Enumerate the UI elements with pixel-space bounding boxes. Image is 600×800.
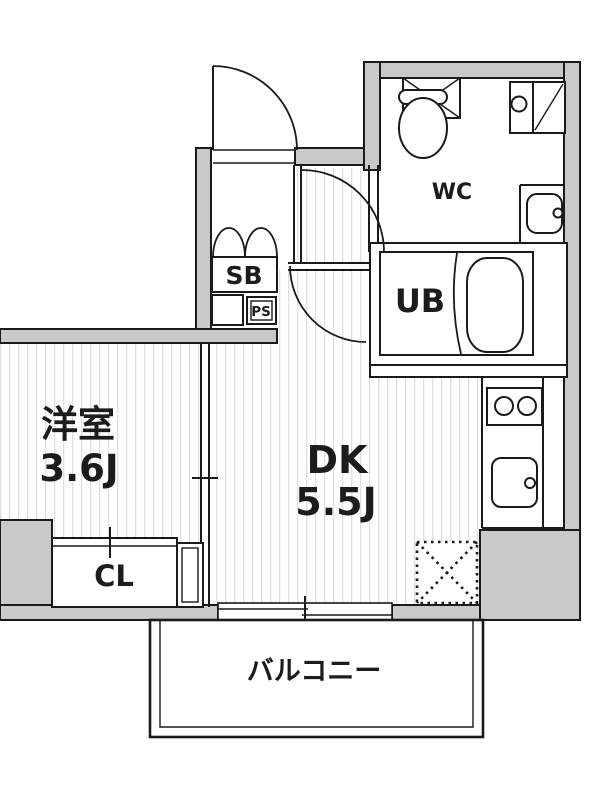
toilet-room-fixtures bbox=[399, 78, 565, 243]
washbasin-faucet bbox=[554, 209, 563, 218]
toilet-bowl bbox=[399, 98, 447, 158]
pipe-space-label: PS bbox=[251, 304, 271, 320]
corridor-floor-wc bbox=[294, 168, 369, 263]
closet-side-inner-box bbox=[182, 548, 198, 602]
bath-block-top-wall bbox=[364, 62, 580, 78]
western-room-label: 洋室 bbox=[41, 403, 115, 446]
entrance-door-arc bbox=[213, 66, 297, 150]
shoebox-door-arc-left bbox=[213, 228, 245, 257]
ub-label: UB bbox=[395, 282, 445, 320]
shoe-box-label: SB bbox=[225, 261, 262, 290]
kitchen-faucet bbox=[525, 478, 535, 488]
corner-wall-block bbox=[480, 530, 580, 620]
shoebox-door-arc-right bbox=[245, 228, 277, 257]
bottom-wall-right bbox=[392, 605, 484, 620]
wc-label: WC bbox=[432, 180, 472, 205]
stove-burner-left bbox=[495, 397, 513, 415]
closet-label: CL bbox=[94, 559, 134, 593]
balcony-label: バルコニー bbox=[247, 656, 381, 687]
western-room-top-wall bbox=[0, 329, 277, 343]
bath-block-left-wall bbox=[364, 62, 380, 170]
floor-plan: 洋室 3.6J DK 5.5J WC UB CL SB PS バルコニー bbox=[0, 0, 600, 800]
western-room-size-label: 3.6J bbox=[39, 447, 118, 490]
kitchen bbox=[482, 377, 564, 528]
refrigerator-space bbox=[417, 542, 477, 603]
hallway-left-wall bbox=[196, 148, 211, 343]
dk-label: DK bbox=[307, 438, 370, 482]
floor-plan-drawing: 洋室 3.6J DK 5.5J WC UB CL SB PS バルコニー bbox=[0, 0, 600, 800]
utility-box bbox=[212, 295, 243, 325]
stove-burner-right bbox=[518, 397, 536, 415]
bathtub bbox=[467, 258, 523, 352]
dk-size-label: 5.5J bbox=[295, 480, 376, 524]
washer-drain bbox=[512, 97, 527, 112]
